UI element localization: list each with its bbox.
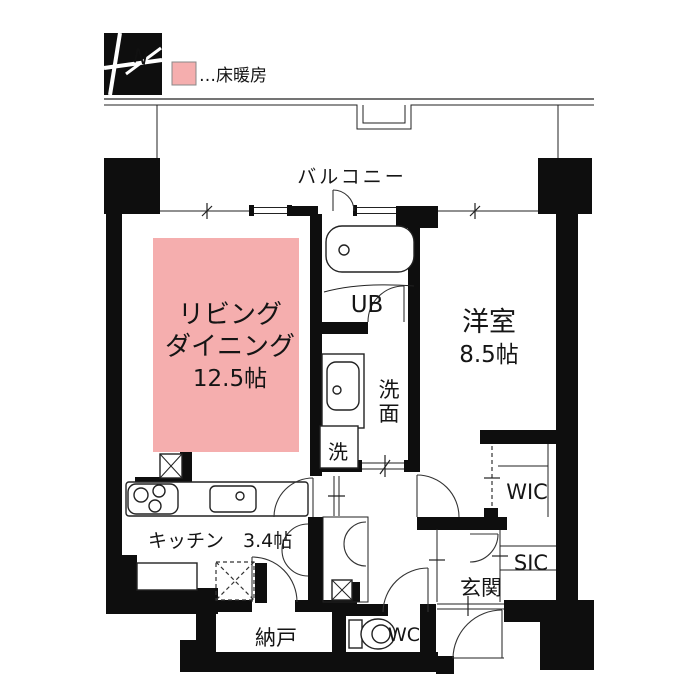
living-dining-label-1: リビング	[178, 300, 282, 330]
wc-label: WC	[388, 624, 420, 646]
wic-label: WIC	[506, 480, 548, 504]
kitchen-sink-icon	[210, 486, 256, 512]
washroom-label-1: 洗	[379, 378, 400, 402]
stove-icon	[128, 484, 178, 514]
kitchen-counter	[126, 482, 308, 516]
balcony-label: バルコニー	[297, 166, 407, 188]
floor-plan: N …床暖房 バルコニー リビング ダイニング 12.5帖 洋室 8.5帖 UB…	[0, 0, 700, 700]
living-dining-size: 12.5帖	[193, 366, 267, 392]
floor-heating-legend: …床暖房	[172, 62, 267, 86]
western-room-label: 洋室	[462, 307, 516, 338]
floor-plan-canvas: N …床暖房 バルコニー リビング ダイニング 12.5帖 洋室 8.5帖 UB…	[0, 0, 700, 700]
kitchen-cabinet	[137, 563, 197, 590]
unit-bath-label: UB	[351, 292, 384, 318]
storage-label: 納戸	[255, 626, 297, 650]
laundry-label: 洗	[328, 440, 348, 464]
compass-icon: N	[104, 33, 162, 95]
western-room-size: 8.5帖	[459, 342, 519, 368]
washroom-label-2: 面	[379, 402, 400, 426]
washbasin-icon	[322, 354, 364, 428]
entrance-label: 玄関	[460, 576, 502, 600]
living-dining-label-2: ダイニング	[165, 332, 295, 362]
legend-swatch	[172, 62, 196, 85]
pipe-space-icon	[160, 454, 182, 478]
pipe-space-icon	[332, 580, 352, 600]
legend-label: …床暖房	[199, 66, 267, 86]
sic-label: SIC	[514, 551, 548, 575]
kitchen-label: キッチン 3.4帖	[148, 530, 292, 552]
